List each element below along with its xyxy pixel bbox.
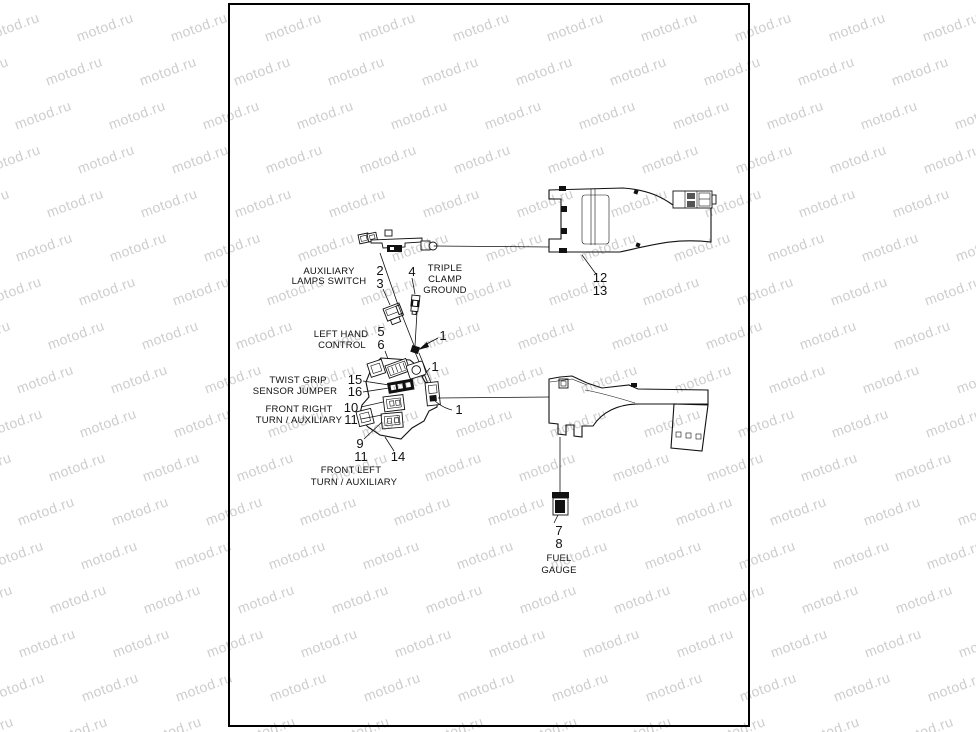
watermark-text: motod.ru <box>75 141 136 176</box>
watermark-text: motod.ru <box>110 625 171 660</box>
watermark-text: motod.ru <box>46 449 107 484</box>
watermark-text: motod.ru <box>800 713 861 732</box>
watermark-text: motod.ru <box>172 537 233 572</box>
watermark-text: motod.ru <box>48 713 109 732</box>
label-front-left-turn-line1: FRONT LEFT <box>321 465 381 476</box>
watermark-text: motod.ru <box>952 97 976 132</box>
watermark-text: motod.ru <box>79 669 140 704</box>
watermark-text: motod.ru <box>142 713 203 732</box>
watermark-text: motod.ru <box>105 0 166 1</box>
label-twist-grip-jumper-line2: SENSOR JUMPER <box>253 386 337 397</box>
watermark-text: motod.ru <box>109 493 170 528</box>
watermark-text: motod.ru <box>139 317 200 352</box>
watermark-text: motod.ru <box>0 537 45 572</box>
watermark-text: motod.ru <box>0 53 10 88</box>
label-auxiliary-lamps-switch-line2: LAMPS SWITCH <box>292 276 367 287</box>
watermark-text: motod.ru <box>138 185 199 220</box>
part-number-16: 16 <box>348 384 362 399</box>
watermark-text: motod.ru <box>764 97 825 132</box>
watermark-text: motod.ru <box>951 0 976 1</box>
watermark-text: motod.ru <box>16 625 77 660</box>
watermark-text: motod.ru <box>11 0 72 1</box>
watermark-text: motod.ru <box>892 449 953 484</box>
watermark-text: motod.ru <box>140 449 201 484</box>
part-number-1-c: 1 <box>455 402 462 417</box>
watermark-text: motod.ru <box>860 361 921 396</box>
watermark-text: motod.ru <box>765 229 826 264</box>
part-number-6: 6 <box>377 337 384 352</box>
watermark-text: motod.ru <box>796 185 857 220</box>
parts-diagram-svg: AUXILIARY LAMPS SWITCH 2 3 4 TRIPLE CLAM… <box>230 5 748 725</box>
label-left-hand-control-line2: CONTROL <box>318 340 366 351</box>
watermark-text: motod.ru <box>47 581 108 616</box>
watermark-text: motod.ru <box>0 669 46 704</box>
screenshot-stage: motod.rumotod.rumotod.rumotod.rumotod.ru… <box>0 0 976 732</box>
watermark-text: motod.ru <box>78 537 139 572</box>
watermark-text: motod.ru <box>858 97 919 132</box>
watermark-text: motod.ru <box>44 185 105 220</box>
label-twist-grip-jumper-line1: TWIST GRIP <box>269 375 326 386</box>
watermark-text: motod.ru <box>893 581 954 616</box>
watermark-text: motod.ru <box>387 0 448 1</box>
watermark-text: motod.ru <box>171 405 232 440</box>
watermark-text: motod.ru <box>0 405 44 440</box>
right-handlebar-housing-drawing <box>549 186 716 274</box>
watermark-text: motod.ru <box>107 229 168 264</box>
watermark-text: motod.ru <box>795 53 856 88</box>
label-triple-clamp-ground-line2: CLAMP <box>428 274 462 285</box>
label-front-right-turn-line1: FRONT RIGHT <box>266 404 333 415</box>
watermark-text: motod.ru <box>827 141 888 176</box>
watermark-text: motod.ru <box>921 141 976 176</box>
right-housing-connector-drawing <box>673 191 716 208</box>
left-handlebar-housing-drawing <box>549 376 708 523</box>
watermark-text: motod.ru <box>862 625 923 660</box>
watermark-text: motod.ru <box>0 581 14 616</box>
watermark-text: motod.ru <box>925 669 976 704</box>
watermark-text: motod.ru <box>766 361 827 396</box>
ground-screw-drawing <box>410 295 420 315</box>
aux-lamps-bracket-drawing <box>358 230 549 252</box>
watermark-text: motod.ru <box>797 317 858 352</box>
watermark-text: motod.ru <box>168 9 229 44</box>
label-triple-clamp-ground-line3: GROUND <box>423 285 466 296</box>
watermark-text: motod.ru <box>763 0 824 1</box>
watermark-text: motod.ru <box>955 493 976 528</box>
part-number-4: 4 <box>408 264 415 279</box>
watermark-text: motod.ru <box>173 669 234 704</box>
watermark-text: motod.ru <box>889 53 950 88</box>
watermark-text: motod.ru <box>12 97 73 132</box>
part-number-8: 8 <box>555 536 562 551</box>
diagram-page: AUXILIARY LAMPS SWITCH 2 3 4 TRIPLE CLAM… <box>228 3 750 727</box>
watermark-text: motod.ru <box>0 9 41 44</box>
watermark-text: motod.ru <box>0 449 13 484</box>
watermark-text: motod.ru <box>141 581 202 616</box>
watermark-text: motod.ru <box>14 361 75 396</box>
watermark-text: motod.ru <box>828 273 889 308</box>
watermark-text: motod.ru <box>826 9 887 44</box>
watermark-text: motod.ru <box>0 141 42 176</box>
watermark-text: motod.ru <box>924 537 976 572</box>
label-left-hand-control-line1: LEFT HAND <box>314 329 368 340</box>
watermark-text: motod.ru <box>798 449 859 484</box>
watermark-text: motod.ru <box>891 317 952 352</box>
part-number-13: 13 <box>593 283 607 298</box>
watermark-text: motod.ru <box>43 53 104 88</box>
watermark-text: motod.ru <box>293 0 354 1</box>
watermark-text: motod.ru <box>170 273 231 308</box>
watermark-text: motod.ru <box>768 625 829 660</box>
watermark-text: motod.ru <box>894 713 955 732</box>
watermark-text: motod.ru <box>829 405 890 440</box>
watermark-text: motod.ru <box>108 361 169 396</box>
part-number-1-b: 1 <box>431 359 438 374</box>
label-fuel-gauge-line2: GAUGE <box>541 565 576 576</box>
label-front-left-turn-line2: TURN / AUXILIARY <box>311 477 398 488</box>
label-front-right-turn-line2: TURN / AUXILIARY <box>256 415 343 426</box>
watermark-text: motod.ru <box>45 317 106 352</box>
watermark-text: motod.ru <box>956 625 976 660</box>
watermark-text: motod.ru <box>857 0 918 1</box>
watermark-text: motod.ru <box>954 361 976 396</box>
watermark-text: motod.ru <box>920 9 976 44</box>
watermark-text: motod.ru <box>830 537 891 572</box>
watermark-text: motod.ru <box>767 493 828 528</box>
watermark-text: motod.ru <box>137 53 198 88</box>
watermark-text: motod.ru <box>74 9 135 44</box>
watermark-text: motod.ru <box>861 493 922 528</box>
watermark-text: motod.ru <box>76 273 137 308</box>
watermark-text: motod.ru <box>77 405 138 440</box>
part-number-11-b: 11 <box>354 449 368 464</box>
watermark-text: motod.ru <box>106 97 167 132</box>
watermark-text: motod.ru <box>481 0 542 1</box>
label-triple-clamp-ground-line1: TRIPLE <box>428 263 462 274</box>
label-fuel-gauge-line1: FUEL <box>546 553 571 564</box>
watermark-text: motod.ru <box>13 229 74 264</box>
watermark-text: motod.ru <box>199 0 260 1</box>
part-number-14: 14 <box>391 449 405 464</box>
watermark-text: motod.ru <box>169 141 230 176</box>
watermark-text: motod.ru <box>922 273 976 308</box>
part-number-11-a: 11 <box>344 412 358 427</box>
watermark-text: motod.ru <box>923 405 976 440</box>
watermark-text: motod.ru <box>831 669 892 704</box>
part-number-1-a: 1 <box>439 328 446 343</box>
watermark-text: motod.ru <box>0 273 43 308</box>
watermark-text: motod.ru <box>859 229 920 264</box>
fuel-gauge-connector-drawing <box>552 492 569 515</box>
watermark-text: motod.ru <box>890 185 951 220</box>
watermark-text: motod.ru <box>799 581 860 616</box>
watermark-text: motod.ru <box>0 317 12 352</box>
watermark-text: motod.ru <box>575 0 636 1</box>
part-number-3: 3 <box>376 276 383 291</box>
watermark-text: motod.ru <box>0 713 15 732</box>
watermark-text: motod.ru <box>669 0 730 1</box>
watermark-text: motod.ru <box>0 185 11 220</box>
watermark-text: motod.ru <box>15 493 76 528</box>
watermark-text: motod.ru <box>953 229 976 264</box>
